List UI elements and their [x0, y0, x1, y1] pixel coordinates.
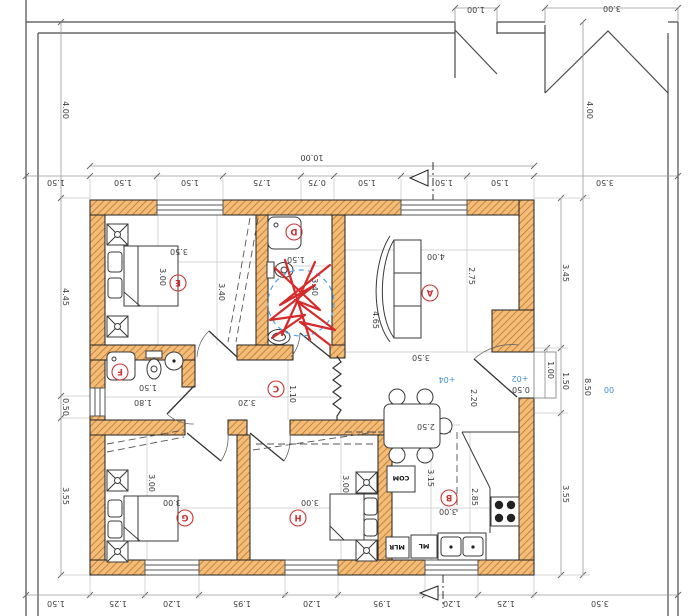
window-room-b	[425, 560, 478, 575]
elevation-label: 00	[604, 385, 614, 394]
room-label-a: A	[426, 287, 433, 297]
dim-label: 1.20	[303, 599, 321, 608]
room-label-g: G	[181, 512, 188, 522]
dim-label: 1.50	[561, 372, 570, 390]
dim-label: 3.00	[163, 498, 181, 507]
bed-room-g	[107, 470, 178, 562]
dim-label: 1.50	[139, 383, 157, 392]
appliance-label-mlr: MLR	[389, 543, 405, 551]
bed-room-h	[330, 472, 378, 561]
appliance-label-com: COM	[393, 474, 410, 482]
section-triangle-top-icon	[410, 170, 428, 186]
wall-e-d	[256, 215, 268, 345]
wall-bottom-2	[199, 560, 285, 575]
wall-corridor-bottom-2	[228, 420, 247, 435]
dim-label: 1.50	[114, 178, 132, 187]
window-room-h	[285, 560, 338, 575]
partial-wall-zigzag	[333, 356, 341, 420]
dim-label: 2.85	[470, 488, 479, 506]
dim-label: 1.75	[253, 178, 271, 187]
wall-top-1	[90, 200, 157, 215]
dim-label: 1.50	[435, 178, 453, 187]
floor-plan-canvas: 1.00 3.00 10.00 1.50 1.50 1.50 1.75 0.75…	[0, 0, 688, 616]
dim-label: 3.55	[61, 487, 70, 505]
dim-label: 3.00	[341, 475, 350, 493]
dim-label: 3.15	[426, 469, 435, 487]
dim-label: 0.50	[61, 398, 70, 416]
dim-label: 2.50	[417, 422, 435, 431]
room-label-f: F	[117, 366, 123, 376]
appliance-label-ml: ML	[419, 542, 430, 550]
dim-label: 2.20	[469, 389, 478, 407]
wall-d-right	[332, 215, 345, 358]
door-room-h	[250, 433, 290, 461]
dim-label: 4.45	[61, 288, 70, 306]
gate-large-icon	[545, 25, 668, 93]
dim-label: 3.50	[596, 178, 614, 187]
window-room-a	[401, 200, 467, 215]
wall-right-lower	[519, 398, 534, 575]
wall-g-h	[237, 435, 250, 560]
dim-label: 3.00	[603, 4, 621, 13]
dim-label: 3.00	[301, 498, 319, 507]
dim-label: 3.20	[238, 398, 256, 407]
room-label-d: D	[290, 226, 297, 236]
dim-label: 4.65	[371, 311, 380, 329]
dim-label: 10.00	[301, 153, 324, 162]
dim-label: 1.25	[109, 599, 127, 608]
room-label-e: E	[175, 277, 181, 287]
stove	[491, 497, 519, 526]
dim-label: 3.50	[170, 247, 188, 256]
door-room-f	[167, 386, 194, 424]
dim-label: 1.25	[497, 599, 515, 608]
dim-label: 4.00	[61, 101, 70, 119]
dim-label: 3.40	[310, 278, 319, 296]
dim-label: 4.00	[427, 252, 445, 261]
dim-label: 1.50	[47, 599, 65, 608]
dim-label: 3.00	[158, 268, 167, 286]
elevation-label: +02	[512, 374, 529, 383]
window-room-f	[90, 388, 105, 416]
dim-label: 1.50	[491, 178, 509, 187]
wall-left-lower	[90, 416, 105, 575]
dim-label: 3.50	[412, 353, 430, 362]
wall-f-right	[182, 360, 195, 387]
wall-corridor-bottom-1	[90, 420, 185, 435]
wall-right-corner-block	[492, 310, 534, 352]
dim-label: 1.20	[163, 599, 181, 608]
room-label-h: H	[294, 512, 301, 522]
dim-label: 1.50	[181, 178, 199, 187]
dim-label: 2.75	[467, 267, 476, 285]
dim-label: 1.50	[47, 178, 65, 187]
dim-label: 1.00	[467, 5, 485, 14]
sofa-room-a	[376, 236, 421, 342]
wall-corridor-top-2	[237, 345, 293, 360]
dim-label: 3.45	[561, 264, 570, 282]
dim-label: 0.75	[308, 178, 326, 187]
wall-bottom-3	[338, 560, 425, 575]
dim-label: 3.40	[217, 283, 226, 301]
dim-label: 0.50	[512, 385, 530, 394]
dim-label: 8.50	[583, 378, 592, 396]
dim-label: 1.20	[443, 599, 461, 608]
wall-top-2	[223, 200, 401, 215]
door-room-g	[187, 433, 228, 461]
window-room-g	[145, 560, 199, 575]
dim-label: 3.00	[147, 474, 156, 492]
wall-corridor-bottom-3	[290, 420, 392, 435]
dim-label: 4.00	[585, 101, 594, 119]
dim-label: 3.00	[439, 507, 457, 516]
wall-bottom-4	[478, 560, 534, 575]
elevation-label: +04	[439, 375, 456, 384]
dim-label: 1.80	[134, 398, 152, 407]
dim-label: 1.10	[288, 385, 297, 403]
room-label-b: B	[446, 492, 452, 502]
dim-label: 1.95	[373, 599, 391, 608]
gate-small-icon	[455, 22, 497, 78]
dim-label: 1.50	[358, 178, 376, 187]
window-room-e	[157, 200, 223, 215]
dim-label: 1.00	[546, 361, 555, 379]
wall-right-upper	[519, 200, 534, 310]
dim-label: 1.95	[233, 599, 251, 608]
room-label-c: C	[273, 383, 279, 393]
door-room-d	[291, 333, 330, 357]
dim-label: 1.50	[287, 255, 305, 264]
dim-label: 3.55	[561, 485, 570, 503]
dim-label: 3.50	[591, 599, 609, 608]
floor-plan-drawing: 1.00 3.00 10.00 1.50 1.50 1.50 1.75 0.75…	[0, 0, 688, 616]
